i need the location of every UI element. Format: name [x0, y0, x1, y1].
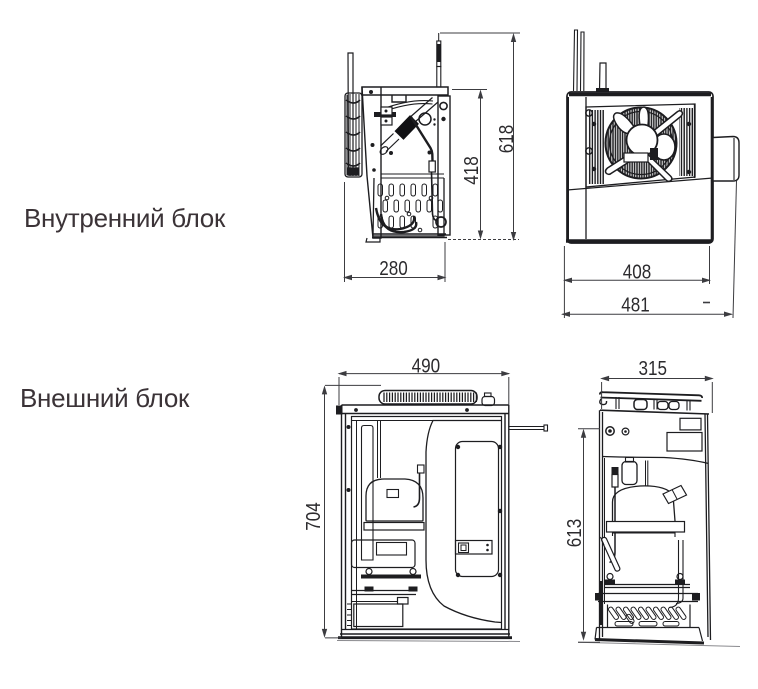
svg-text:618: 618 [496, 125, 518, 154]
svg-text:481: 481 [621, 295, 650, 317]
svg-text:Внешний блок: Внешний блок [20, 383, 190, 413]
svg-text:Внутренний блок: Внутренний блок [24, 203, 226, 233]
svg-text:490: 490 [412, 356, 441, 378]
svg-text:704: 704 [303, 502, 325, 531]
svg-text:613: 613 [564, 519, 586, 548]
svg-text:408: 408 [623, 262, 652, 284]
svg-text:418: 418 [461, 156, 483, 185]
svg-text:280: 280 [379, 258, 408, 280]
svg-text:315: 315 [639, 358, 668, 380]
